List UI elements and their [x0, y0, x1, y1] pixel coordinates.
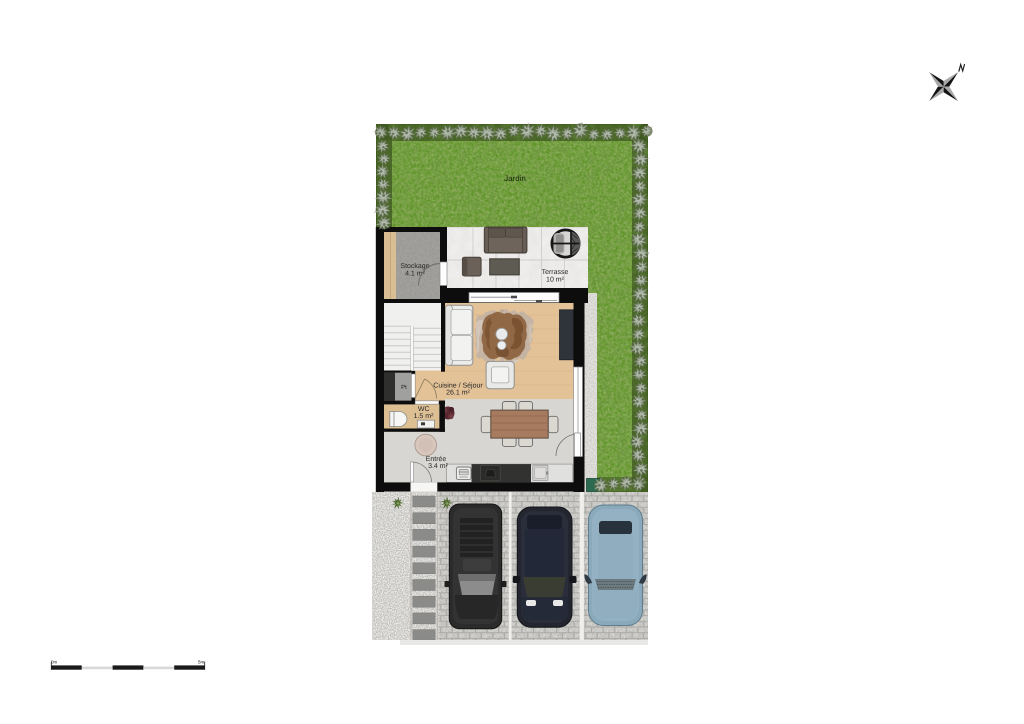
svg-text:Stockage: Stockage	[400, 262, 429, 270]
svg-text:Jardin: Jardin	[504, 174, 526, 183]
svg-text:10 m²: 10 m²	[546, 277, 565, 284]
svg-text:Pt: Pt	[401, 384, 407, 391]
svg-text:0m: 0m	[51, 660, 58, 665]
svg-text:Cuisine / Séjour: Cuisine / Séjour	[433, 382, 483, 390]
svg-text:3.4 m²: 3.4 m²	[428, 463, 449, 470]
svg-text:26.1 m²: 26.1 m²	[446, 390, 470, 397]
svg-text:Entrée: Entrée	[426, 455, 447, 463]
svg-text:1.5 m²: 1.5 m²	[414, 413, 435, 420]
svg-text:5m: 5m	[198, 660, 205, 665]
svg-text:Terrasse: Terrasse	[542, 269, 569, 276]
svg-text:WC: WC	[418, 406, 430, 413]
svg-text:4.1 m²: 4.1 m²	[405, 271, 426, 278]
